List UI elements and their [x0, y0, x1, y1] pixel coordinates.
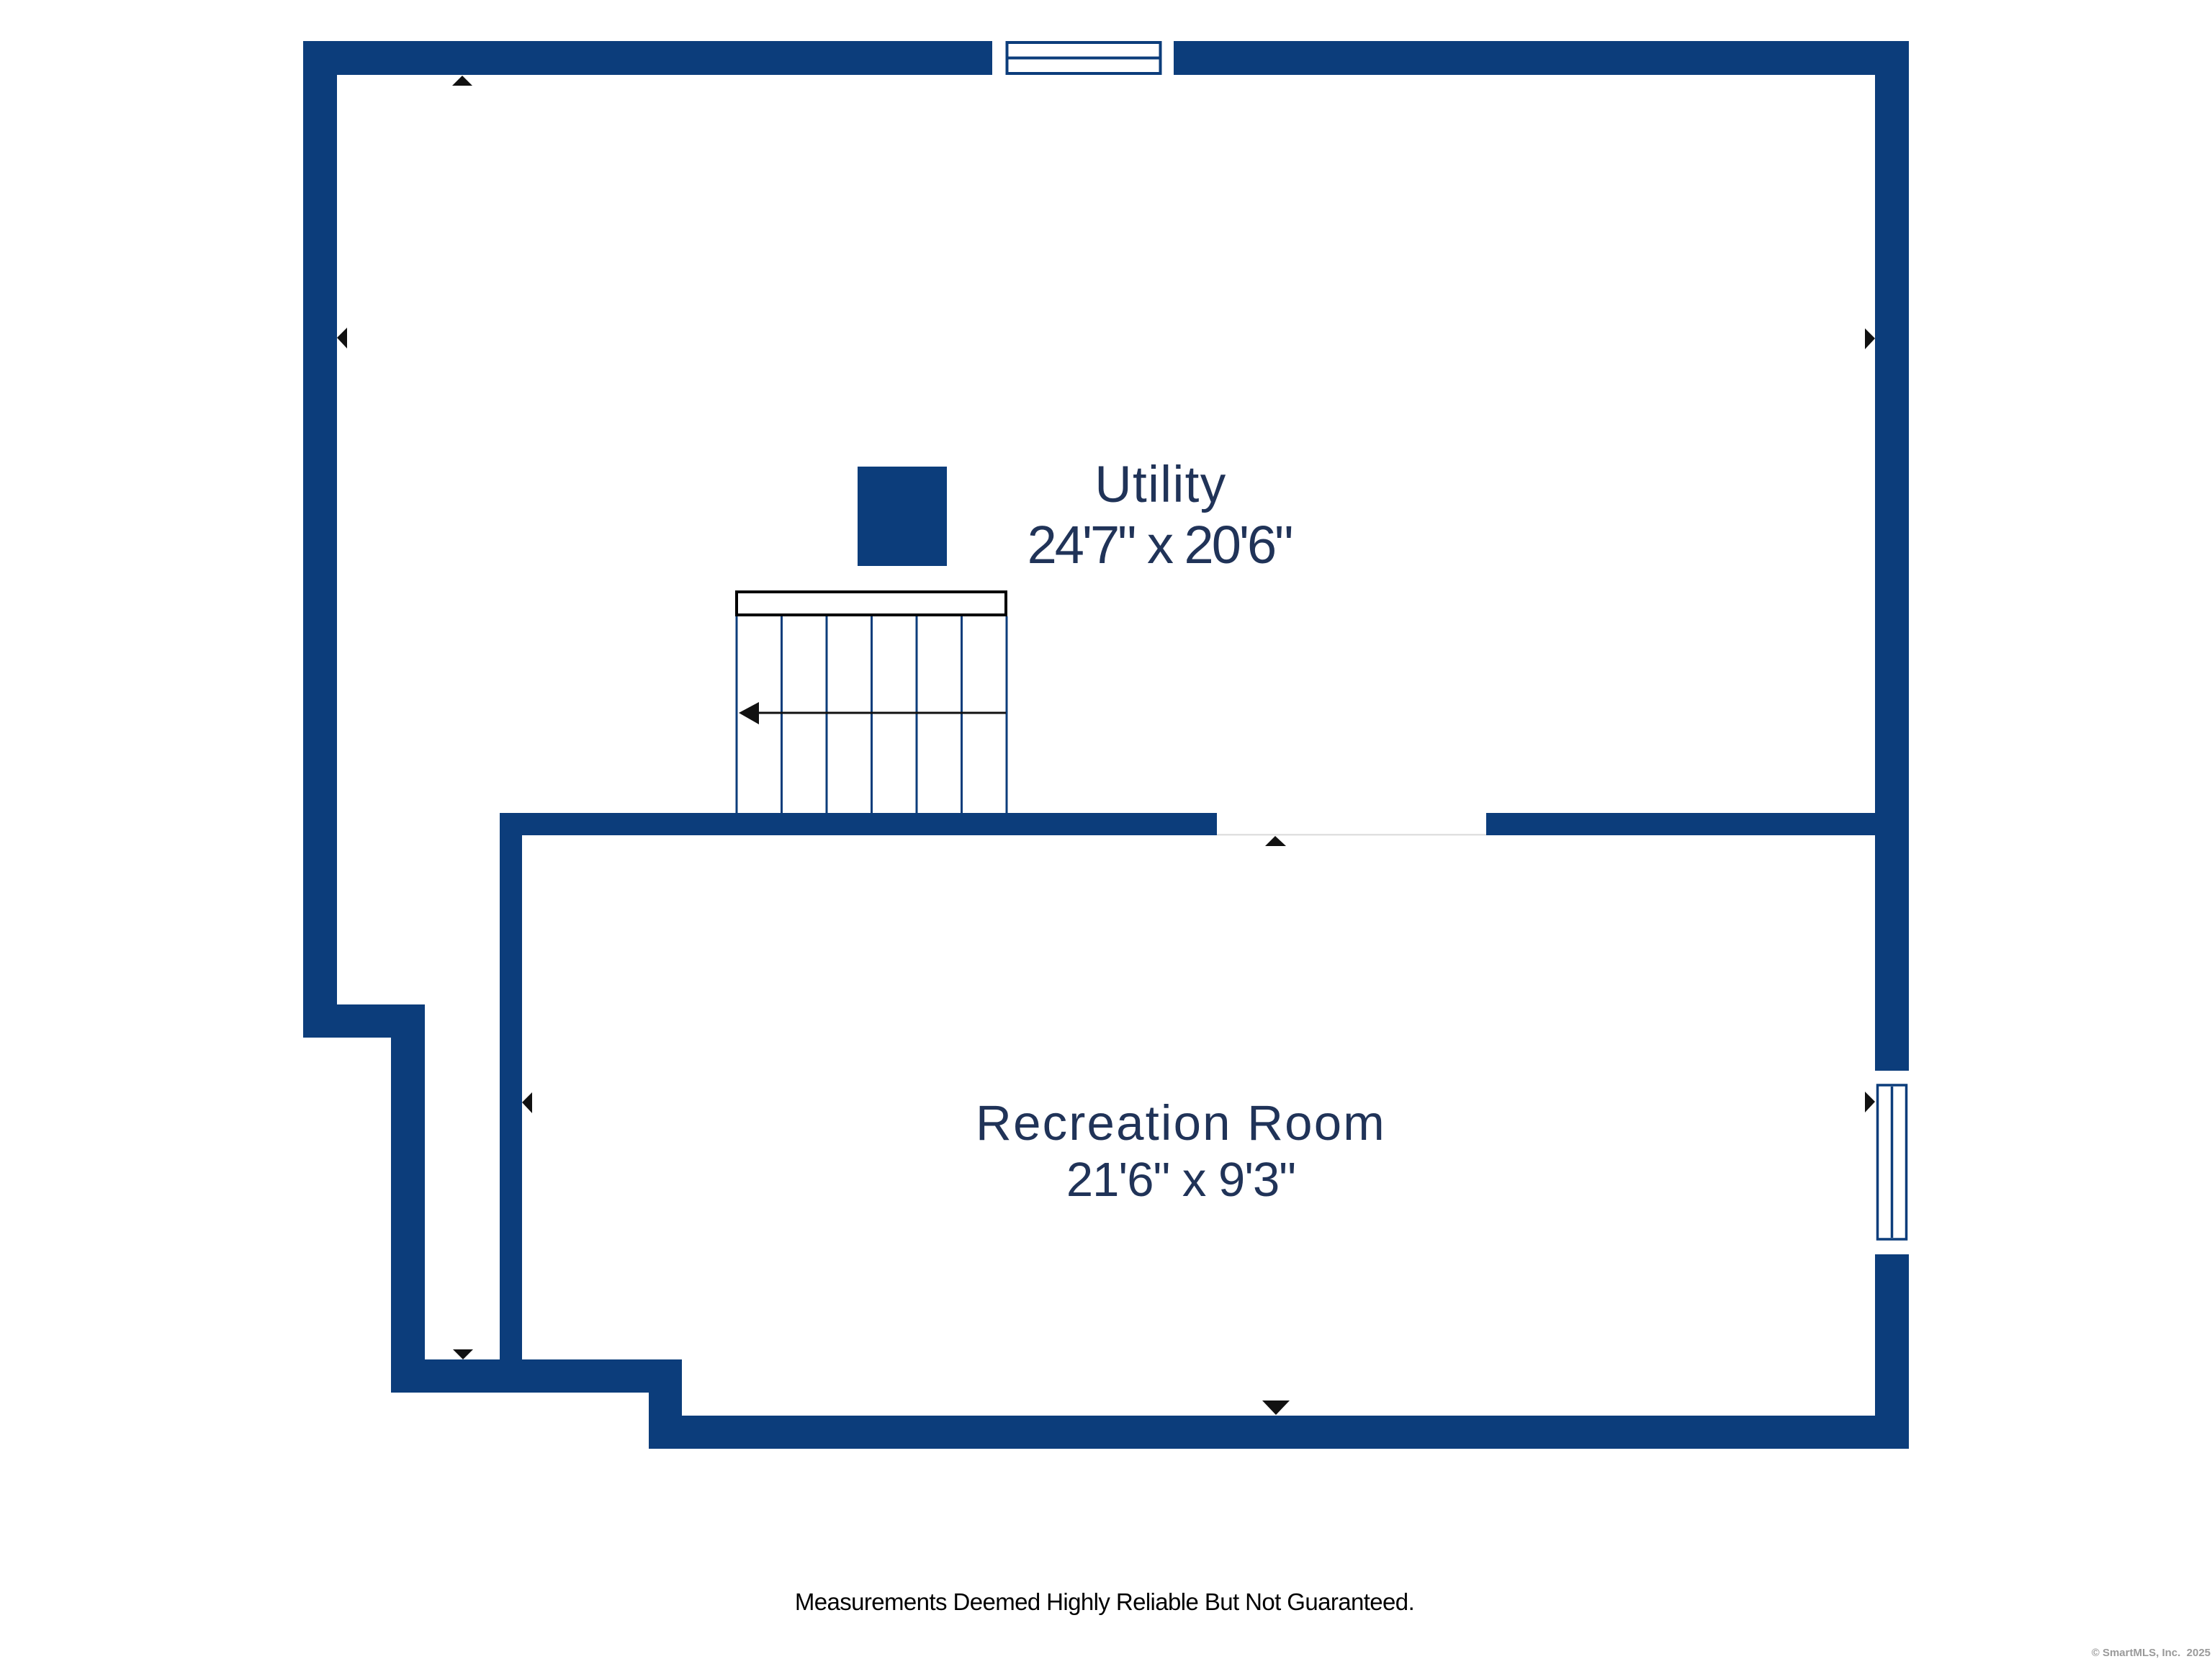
svg-text:24'7" x 20'6": 24'7" x 20'6" — [1028, 515, 1292, 575]
svg-text:Recreation Room: Recreation Room — [976, 1095, 1386, 1151]
svg-text:Measurements Deemed Highly Rel: Measurements Deemed Highly Reliable But … — [795, 1588, 1414, 1615]
svg-text:Utility: Utility — [1094, 457, 1226, 513]
svg-text:21'6" x 9'3": 21'6" x 9'3" — [1066, 1153, 1295, 1207]
svg-text:© SmartMLS, Inc. 2025: © SmartMLS, Inc. 2025 — [2092, 1647, 2211, 1659]
